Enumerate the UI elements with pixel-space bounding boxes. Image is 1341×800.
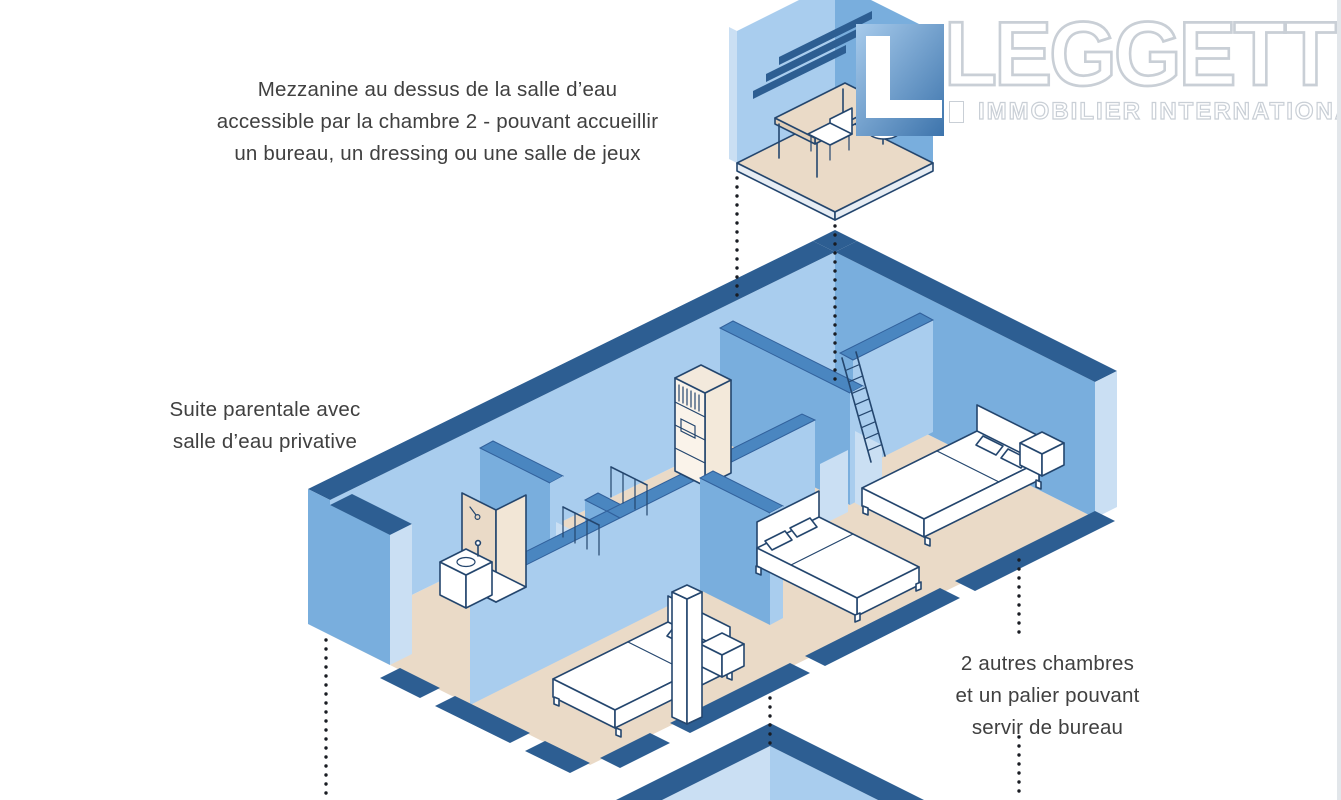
column-post [672,585,702,724]
outer-wall-sw-segment [330,494,412,665]
annotation-line: accessible par la chambre 2 - pouvant ac… [165,106,710,138]
logo-wordmark: LEGGETT [944,2,1334,107]
wall-end-cap [390,524,412,665]
annotation-line: Suite parentale avec [120,394,410,426]
annotation-line: Mezzanine au dessus de la salle d’eau [165,74,710,106]
annotation-mezzanine: Mezzanine au dessus de la salle d’eau ac… [165,74,710,170]
logo-tagline: IMMOBILIER INTERNATIONAL [978,98,1341,126]
mezzanine-wall-edge [729,27,737,163]
annotation-line: et un palier pouvant [915,680,1180,712]
floorplan-infographic: Mezzanine au dessus de la salle d’eau ac… [0,0,1341,800]
wall-end-cap [308,489,330,635]
annotation-line: un bureau, un dressing ou une salle de j… [165,138,710,170]
logo-separator [950,102,963,122]
annotation-line: 2 autres chambres [915,648,1180,680]
annotation-chambres: 2 autres chambres et un palier pouvant s… [915,648,1180,744]
image-border [1337,0,1341,800]
annotation-line: salle d’eau privative [120,426,410,458]
annotation-suite-parentale: Suite parentale avec salle d’eau privati… [120,394,410,458]
annotation-line: servir de bureau [915,712,1180,744]
wall-end-cap [1095,371,1117,518]
bookshelf-icon [675,365,731,486]
